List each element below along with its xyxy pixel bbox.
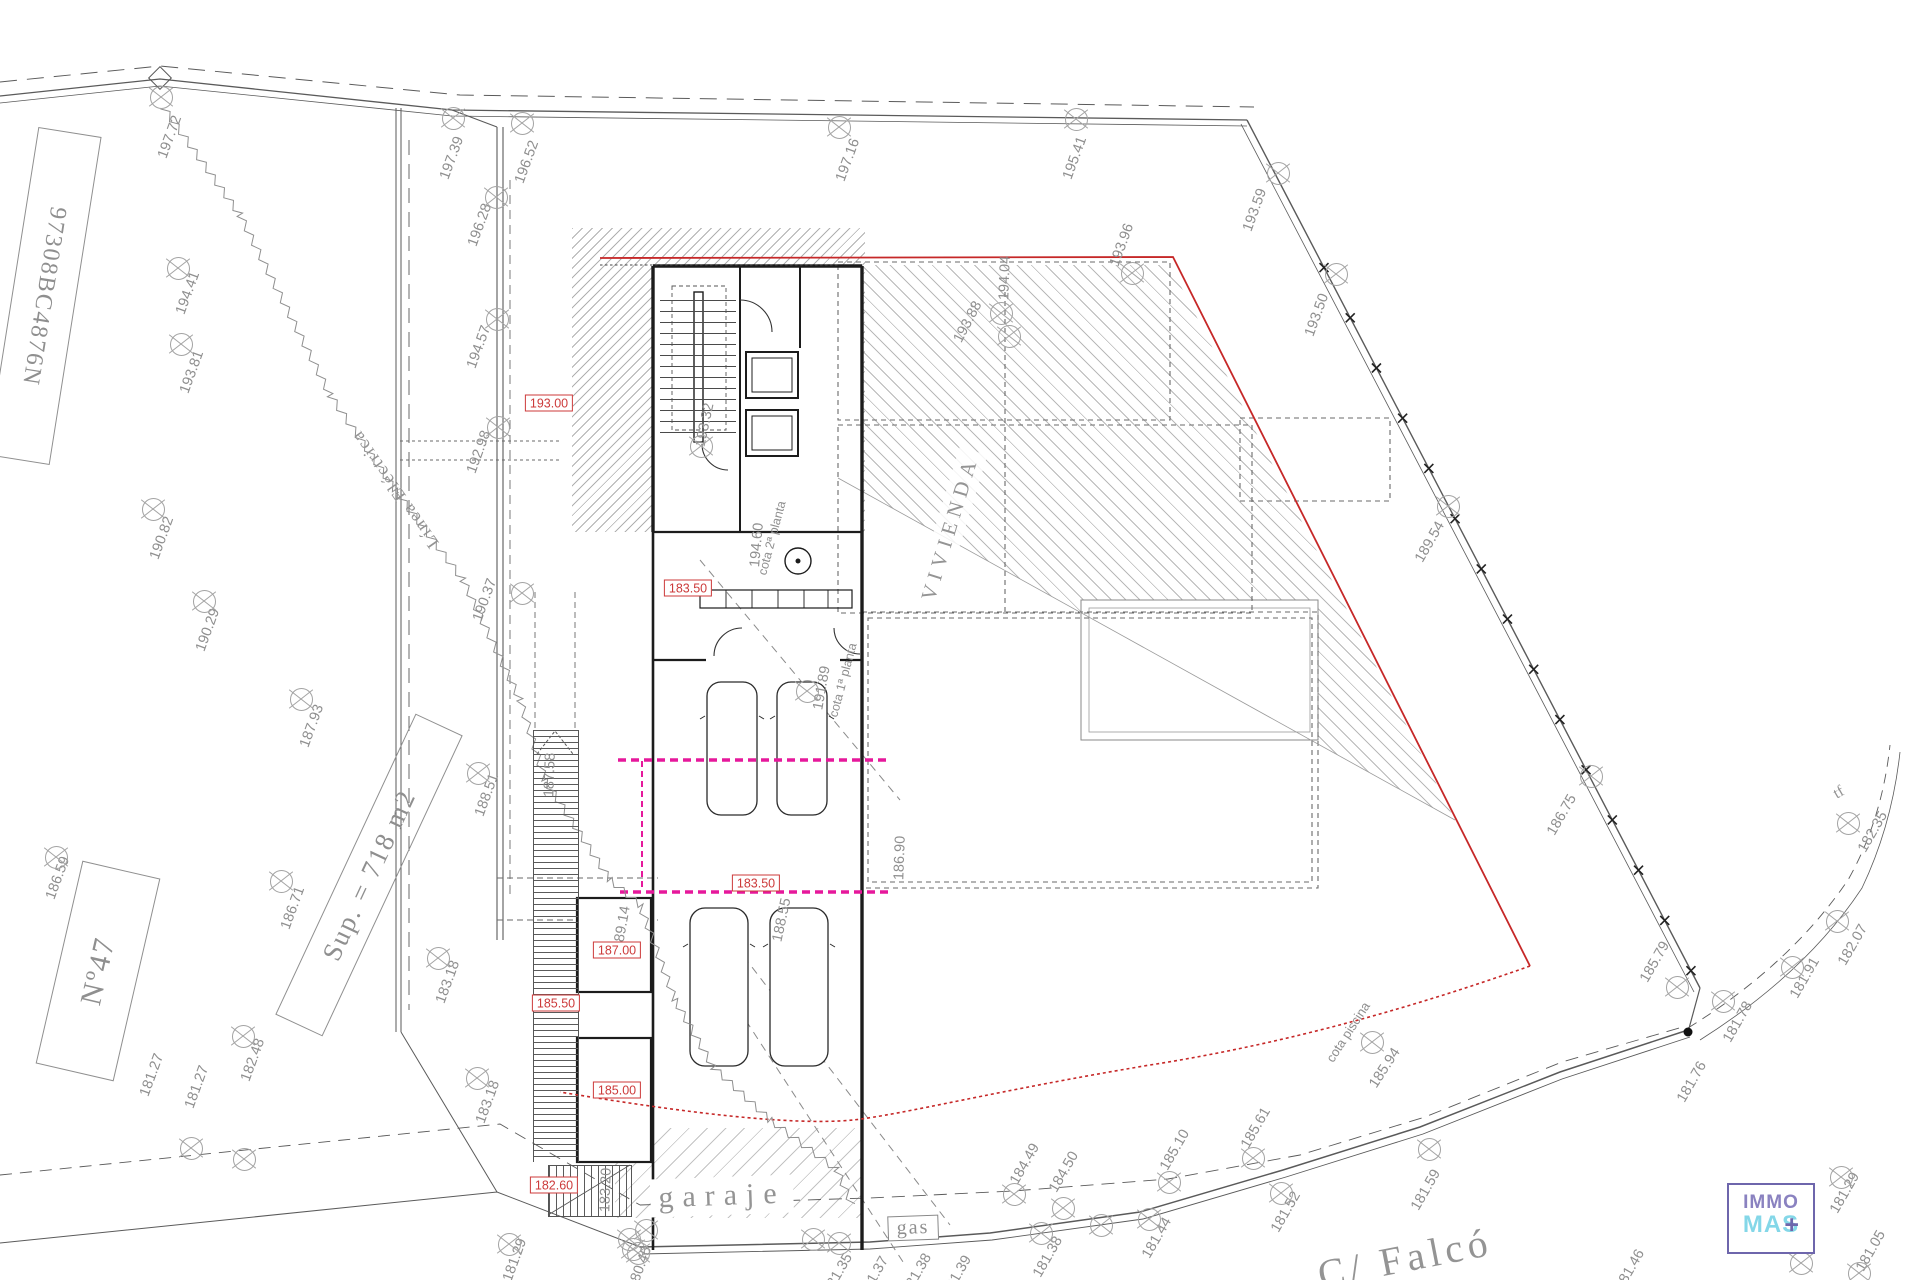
elevation-label: 193.50 bbox=[1302, 291, 1332, 338]
elevation-label: 181.27 bbox=[137, 1051, 167, 1098]
garaje-label: garaje bbox=[650, 1175, 795, 1218]
survey-marker-icon bbox=[45, 846, 68, 869]
elevation-label: 197.72 bbox=[155, 113, 185, 160]
survey-marker-icon bbox=[290, 688, 313, 711]
survey-marker-icon bbox=[442, 107, 465, 130]
elevation-label: 190.29 bbox=[193, 606, 223, 653]
survey-marker-icon bbox=[167, 257, 190, 280]
survey-marker-icon bbox=[1242, 1147, 1265, 1170]
elevation-label: 181.37 bbox=[856, 1254, 892, 1280]
survey-marker-icon bbox=[1138, 1208, 1161, 1231]
elevation-label: 181.46 bbox=[1612, 1247, 1648, 1280]
level-badge: 185.50 bbox=[532, 995, 580, 1012]
survey-marker-icon bbox=[1003, 1183, 1026, 1206]
survey-marker-icon bbox=[1052, 1197, 1075, 1220]
survey-marker-icon bbox=[1848, 1262, 1871, 1280]
elevation-label: 190.82 bbox=[147, 514, 177, 561]
elevation-label: 196.28 bbox=[465, 201, 495, 248]
elevation-label: 193.88 bbox=[951, 299, 986, 346]
elevation-label: 181.59 bbox=[1408, 1167, 1444, 1213]
level-badge: 183.50 bbox=[664, 580, 712, 597]
elevation-label: 185.61 bbox=[1238, 1105, 1274, 1151]
survey-marker-icon bbox=[627, 1242, 650, 1265]
survey-marker-icon bbox=[466, 1067, 489, 1090]
elevation-label: 197.16 bbox=[833, 136, 863, 183]
cadastral-ref-label: 97308BC4876N bbox=[0, 127, 102, 465]
survey-marker-icon bbox=[1361, 1031, 1384, 1054]
telephone-label: tf bbox=[1830, 783, 1847, 803]
survey-marker-icon bbox=[1325, 263, 1348, 286]
survey-marker-icon bbox=[1781, 956, 1804, 979]
survey-marker-icon bbox=[1121, 262, 1144, 285]
elevation-label: 186.90 bbox=[891, 836, 909, 881]
survey-marker-icon bbox=[270, 870, 293, 893]
elevation-label: 184.49 bbox=[1007, 1141, 1043, 1187]
survey-marker-icon bbox=[498, 1233, 521, 1256]
survey-marker-icon bbox=[1267, 162, 1290, 185]
survey-marker-icon bbox=[1837, 812, 1860, 835]
survey-marker-icon bbox=[1437, 495, 1460, 518]
elevation-label: 183.20 bbox=[597, 1168, 615, 1213]
elevation-label: 181.38 bbox=[899, 1251, 935, 1280]
elevation-label: 181.35 bbox=[820, 1251, 856, 1280]
elevation-label: 181.76 bbox=[1674, 1059, 1710, 1105]
survey-marker-icon bbox=[180, 1137, 203, 1160]
level-badge: 182.60 bbox=[530, 1177, 578, 1194]
survey-marker-icon bbox=[1030, 1222, 1053, 1245]
logo-plus-icon: + bbox=[1784, 1211, 1800, 1240]
level-badge: 193.00 bbox=[525, 395, 573, 412]
survey-marker-icon bbox=[1270, 1182, 1293, 1205]
survey-marker-icon bbox=[427, 947, 450, 970]
survey-marker-icon bbox=[1418, 1138, 1441, 1161]
elevation-label: 194.57 bbox=[464, 323, 494, 370]
elevation-label: 185.10 bbox=[1157, 1127, 1193, 1173]
survey-marker-icon bbox=[802, 1228, 825, 1251]
power-line-label: Línea Eléctrica bbox=[346, 426, 443, 552]
elevation-label: 196.52 bbox=[512, 138, 542, 185]
survey-marker-icon bbox=[233, 1148, 256, 1171]
logo-text-mas: MAS + bbox=[1729, 1211, 1813, 1239]
survey-marker-icon bbox=[485, 186, 508, 209]
elevation-label: 187.58 bbox=[541, 753, 559, 798]
level-badge: 185.00 bbox=[593, 1082, 641, 1099]
elevation-label: 190.37 bbox=[470, 576, 500, 623]
elevation-label: 186.75 bbox=[1544, 792, 1580, 838]
survey-marker-icon bbox=[1790, 1252, 1813, 1275]
survey-marker-icon bbox=[511, 112, 534, 135]
survey-marker-icon bbox=[998, 325, 1021, 348]
survey-marker-icon bbox=[150, 86, 173, 109]
elevation-label: 195.41 bbox=[1060, 134, 1090, 181]
survey-marker-icon bbox=[690, 435, 713, 458]
utility-point-marker bbox=[1684, 1028, 1693, 1037]
survey-marker-icon bbox=[170, 333, 193, 356]
survey-marker-icon bbox=[796, 680, 819, 703]
survey-marker-icon bbox=[990, 302, 1013, 325]
survey-marker-icon bbox=[1090, 1214, 1113, 1237]
survey-marker-icon bbox=[1826, 910, 1849, 933]
elevation-label: 182.35 bbox=[1855, 809, 1891, 855]
vivienda-label: VIVIENDA bbox=[913, 447, 988, 609]
survey-marker-icon bbox=[1666, 976, 1689, 999]
survey-marker-icon bbox=[1158, 1171, 1181, 1194]
elevation-label: 184.50 bbox=[1046, 1149, 1082, 1195]
elevation-label: 189.54 bbox=[1412, 519, 1448, 565]
level-badge: 187.00 bbox=[593, 942, 641, 959]
survey-marker-icon bbox=[486, 308, 509, 331]
survey-marker-icon bbox=[487, 416, 510, 439]
plot-area-label: Sup. = 718 m2 bbox=[275, 714, 462, 1037]
survey-marker-icon bbox=[467, 762, 490, 785]
level-badge: 183.50 bbox=[732, 875, 780, 892]
survey-marker-icon bbox=[142, 498, 165, 521]
street-name-label: C/ Falcó bbox=[1314, 1218, 1496, 1280]
elevation-label: 188.55 bbox=[770, 897, 795, 944]
elevation-label: 181.27 bbox=[182, 1063, 212, 1110]
elevation-label: 193.59 bbox=[1240, 186, 1270, 233]
elevation-label: 181.39 bbox=[939, 1253, 975, 1280]
survey-marker-icon bbox=[828, 116, 851, 139]
elevation-label: 197.39 bbox=[437, 134, 467, 181]
survey-marker-icon bbox=[1580, 765, 1603, 788]
survey-marker-icon bbox=[1712, 990, 1735, 1013]
immomas-logo: IMMO MAS + bbox=[1727, 1183, 1815, 1254]
survey-marker-icon bbox=[193, 590, 216, 613]
survey-marker-icon bbox=[635, 1219, 658, 1242]
survey-marker-icon bbox=[511, 582, 534, 605]
elevation-label: 194.04 bbox=[996, 256, 1014, 301]
survey-marker-icon bbox=[232, 1025, 255, 1048]
site-plan-canvas: VIVIENDA garaje gas C/ Falcó Línea Eléct… bbox=[0, 0, 1920, 1280]
survey-marker-icon bbox=[1830, 1166, 1853, 1189]
survey-marker-icon bbox=[828, 1232, 851, 1255]
gas-label: gas bbox=[887, 1215, 939, 1242]
survey-marker-icon bbox=[1065, 108, 1088, 131]
